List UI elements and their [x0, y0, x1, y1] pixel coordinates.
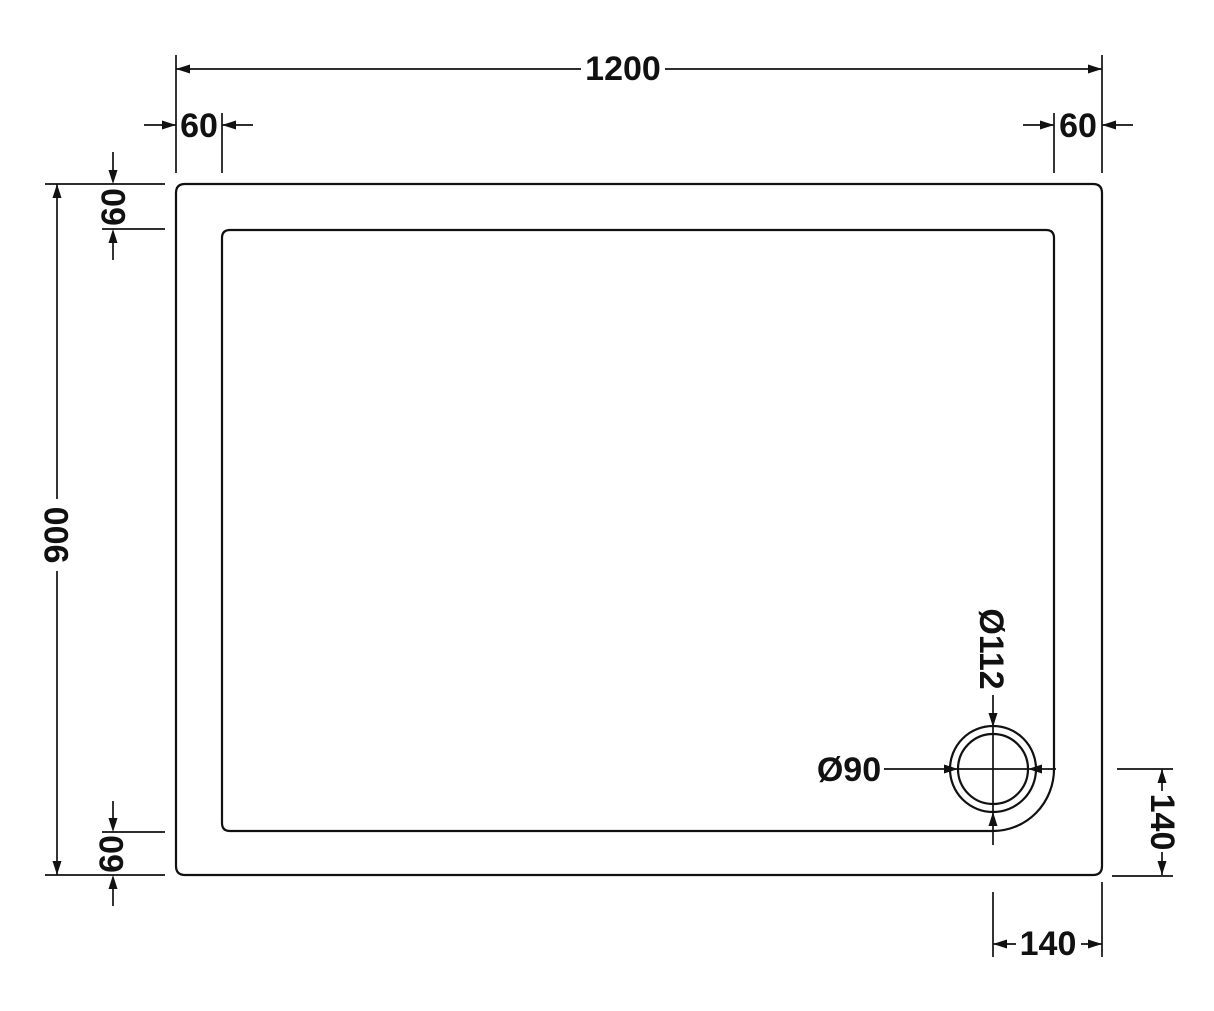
arrowhead — [53, 184, 62, 198]
dimension-waste-bottom-offset: 140 — [993, 882, 1102, 963]
arrowhead — [222, 121, 236, 130]
dimension-waste-right-offset: 140 — [1112, 769, 1181, 876]
arrowhead — [993, 940, 1007, 949]
tray-outer-outline — [176, 184, 1102, 875]
dim-left-bottom-offset-label: 60 — [93, 835, 131, 873]
arrowhead — [176, 65, 190, 74]
tray-inner-outline — [222, 230, 1054, 831]
arrowhead — [109, 875, 118, 889]
arrowhead — [1158, 861, 1167, 875]
arrowhead — [1040, 121, 1054, 130]
dim-waste-diameter-label: Ø90 — [817, 751, 881, 789]
dimension-total-width: 1200 — [176, 50, 1102, 173]
dimension-total-height: 900 — [38, 184, 165, 875]
arrowhead — [53, 861, 62, 875]
arrowhead — [109, 229, 118, 243]
drawing-canvas: 1200 60 60 900 60 60 — [0, 0, 1214, 1011]
dimension-top-right-offset: 60 — [1023, 107, 1133, 173]
arrowhead — [109, 818, 118, 832]
arrowhead — [1088, 940, 1102, 949]
dim-waste-outer-diameter-label: Ø112 — [972, 608, 1010, 689]
shower-tray-technical-drawing: 1200 60 60 900 60 60 — [0, 0, 1214, 1011]
arrowhead — [989, 713, 998, 727]
dim-top-right-offset-label: 60 — [1059, 107, 1097, 145]
tray-outlines — [176, 184, 1102, 875]
dim-waste-bottom-offset-label: 140 — [1020, 925, 1077, 963]
dimension-left-bottom-offset: 60 — [93, 801, 165, 906]
arrowhead — [1088, 65, 1102, 74]
dimension-top-left-offset: 60 — [144, 107, 253, 173]
dim-top-left-offset-label: 60 — [180, 107, 218, 145]
arrowhead — [162, 121, 176, 130]
dim-waste-right-offset-label: 140 — [1143, 794, 1181, 851]
arrowhead — [989, 812, 998, 826]
dimension-waste-diameter: Ø90 — [817, 751, 1056, 789]
dimension-left-top-offset: 60 — [95, 152, 165, 260]
dim-total-width-label: 1200 — [585, 50, 661, 88]
dim-total-height-label: 900 — [38, 507, 76, 564]
arrowhead — [109, 170, 118, 184]
dim-left-top-offset-label: 60 — [95, 188, 133, 226]
arrowhead — [1102, 121, 1116, 130]
arrowhead — [1158, 769, 1167, 783]
